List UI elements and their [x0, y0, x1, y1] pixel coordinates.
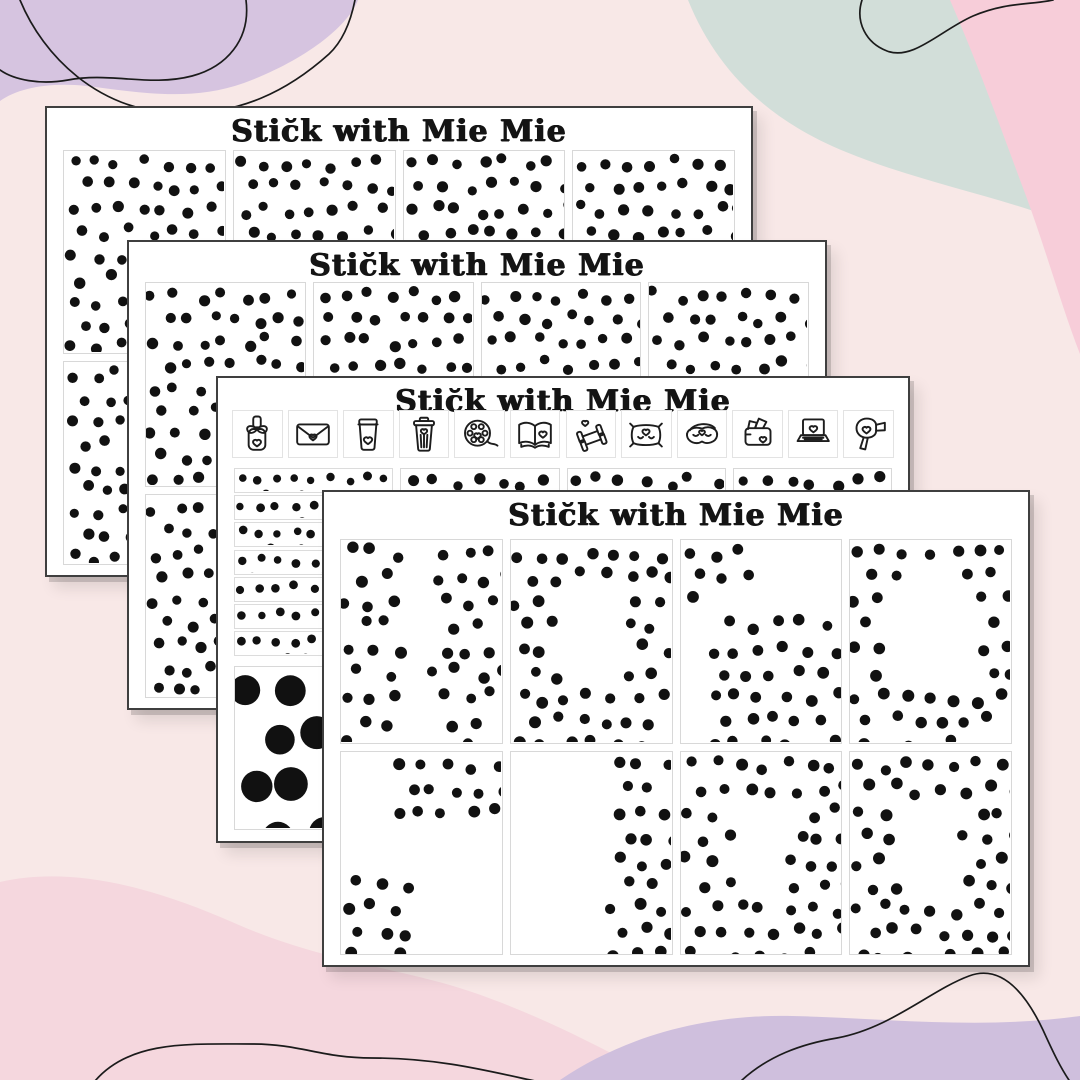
open-book-icon: [510, 410, 561, 458]
sticker-box: [849, 539, 1012, 744]
dot-pattern: [341, 540, 501, 742]
sticker-box: [510, 751, 673, 956]
hair-dryer-icon: [843, 410, 894, 458]
pillow-icon: [621, 410, 672, 458]
coffee-cup-icon: [343, 410, 394, 458]
film-reel-icon: [454, 410, 505, 458]
sheet-1-title: Stic̆k with Mie Mie: [47, 114, 751, 149]
dot-pattern: [511, 540, 671, 742]
lavender-blob-top-left: [0, 0, 358, 101]
sheet-2-title: Stic̆k with Mie Mie: [129, 248, 825, 283]
sleep-mask-icon: [677, 410, 728, 458]
dot-pattern: [511, 752, 671, 954]
sheet-4-title: Stic̆k with Mie Mie: [324, 498, 1028, 533]
product-mockup-stage: Stic̆k with Mie Mie Stic̆k with Mie Mie …: [0, 0, 1080, 1080]
sticker-box: [510, 539, 673, 744]
sticker-box: [340, 751, 503, 956]
nail-polish-icon: [232, 410, 283, 458]
dot-pattern: [850, 752, 1010, 954]
sticker-box: [680, 751, 843, 956]
wallet-icon: [732, 410, 783, 458]
dot-pattern: [341, 752, 501, 954]
sticker-box: [680, 539, 843, 744]
sticker-box: [340, 539, 503, 744]
dot-pattern: [681, 752, 841, 954]
sticker-box: [849, 751, 1012, 956]
lavender-blob-bottom-right: [560, 1016, 1080, 1080]
dumbbells-icon: [566, 410, 617, 458]
dot-pattern: [235, 469, 391, 491]
envelope-icon: [288, 410, 339, 458]
dot-pattern: [681, 540, 841, 742]
laptop-icon: [788, 410, 839, 458]
sticker-sheet-4: Stic̆k with Mie Mie: [322, 490, 1030, 967]
dot-pattern: [850, 540, 1010, 742]
trash-can-icon: [399, 410, 450, 458]
